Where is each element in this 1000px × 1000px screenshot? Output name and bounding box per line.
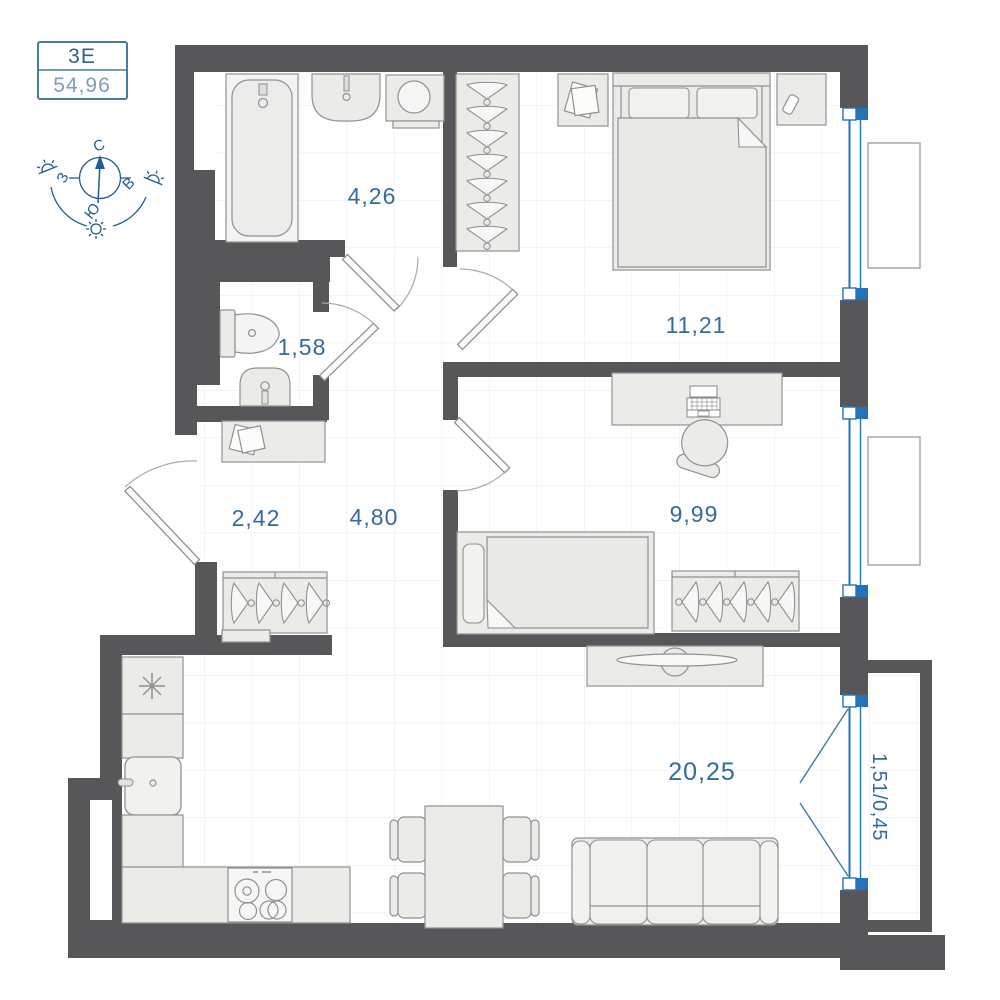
floor-plan-page: 4,26 1,58 2,42 4,80 11,21 9,99 20,25 1,5… [0,0,1000,1000]
chair-icon [398,873,426,918]
unit-area-label: 54,96 [53,74,111,97]
tv-console-icon [587,646,763,686]
nightstand-right-icon [777,74,826,125]
single-bed-icon [457,532,654,634]
wall-right-living [840,597,868,695]
wall-kitchen-left-upper [100,655,122,778]
window-bedroom2 [840,407,868,597]
console-table-icon [222,421,325,462]
stove-icon [228,868,292,922]
bedroom2-wardrobe-icon [672,571,799,631]
washing-machine-icon [386,75,444,128]
unit-type-label: 3Е [68,45,96,68]
wc-sink-icon [240,368,290,406]
unit-info-box: 3Е 54,96 [38,42,127,99]
floor-plan-canvas: 4,26 1,58 2,42 4,80 11,21 9,99 20,25 1,5… [0,0,1000,1000]
room-label-corridor: 4,80 [350,504,399,530]
window-ledge-bedroom2 [868,437,920,565]
kitchen-counter [122,714,183,758]
laptop-icon [687,386,720,417]
chair-icon [503,817,531,862]
chair-icon [503,873,531,918]
hallway-wardrobe-icon [222,572,329,642]
bedroom-wardrobe-icon [456,74,519,251]
compass-east-label: В [119,174,138,193]
wall-wc-top [197,253,330,282]
wall-bottom-right [840,935,945,970]
wall-bedroom2-living [443,633,840,647]
wall-balcony-right [920,660,932,932]
bathtub-icon [226,74,298,242]
chair-icon [398,817,426,862]
wall-right-mid [840,300,868,407]
wall-bedroom2-door-stub [443,377,458,420]
wall-balcony-bottom [865,920,932,932]
compass: С З В Ю [35,136,167,239]
sunrise-icon [35,156,58,174]
compass-north-label: С [91,136,108,156]
window-bedroom [840,108,868,300]
nightstand-left-icon [558,74,608,126]
room-label-living-kitchen: 20,25 [668,758,736,786]
compass-arrowhead [95,155,105,169]
bathroom-sink-icon [312,74,380,121]
wall-right-low [840,890,868,935]
room-label-bedroom: 11,21 [666,312,727,338]
sunset-icon [144,167,167,185]
kitchen-sink-icon [118,757,181,815]
wall-top [175,45,868,72]
chair-icon [531,876,539,916]
tv-icon [617,654,737,666]
wall-corridor-right [443,490,458,633]
wall-niche-kitchen [90,800,112,920]
wall-hall-kitchen [100,635,332,655]
desk-icon [612,373,782,425]
compass-west-label: З [53,170,72,186]
wall-left-entry-bottom [195,562,217,635]
chair-icon [390,876,398,916]
sun-icon [86,219,106,239]
sun-path-arc-left [51,187,87,226]
room-label-bedroom2: 9,99 [670,501,719,527]
chair-icon [531,820,539,860]
entry-door [125,461,200,564]
room-label-hallway: 2,42 [232,505,281,531]
compass-south-label: Ю [81,200,104,222]
double-bed-icon [613,73,770,270]
wall-niche-bathroom [194,72,215,170]
wall-corridor-bedroom [443,45,457,267]
wall-right-top [840,45,868,108]
sun-path-arc-right [113,197,146,226]
kitchen-counter [122,815,183,867]
room-label-balcony: 1,51/0,45 [868,753,890,841]
wall-wc-right-upper [313,282,329,312]
room-label-bathroom: 4,26 [348,183,397,209]
room-label-wc: 1,58 [278,334,327,360]
window-ledge-bedroom [868,143,920,268]
dining-table-icon [425,806,503,928]
wall-wc-bottom [193,406,327,422]
sofa-icon [572,838,778,925]
chair-icon [390,820,398,860]
